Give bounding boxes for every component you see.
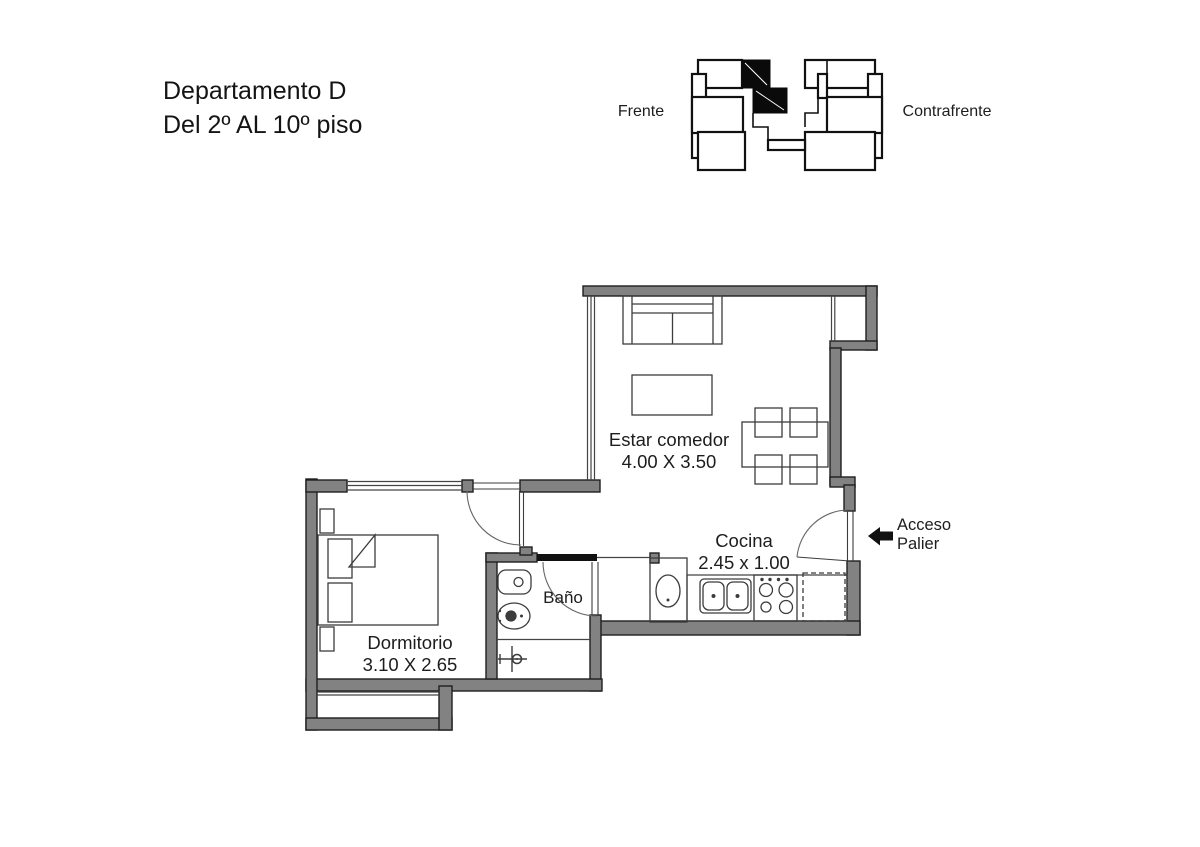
key-plan xyxy=(692,60,882,170)
plan-title-line1: Departamento D xyxy=(163,74,362,108)
arrow-left-icon xyxy=(868,527,893,546)
door-leaf xyxy=(520,491,524,546)
door-arc xyxy=(797,510,849,557)
keyplan-block xyxy=(805,132,875,170)
plan-title-line2: Del 2º AL 10º piso xyxy=(163,108,362,142)
keyplan-block xyxy=(698,132,745,170)
door-arc xyxy=(467,491,521,545)
living-room-name: Estar comedor xyxy=(609,429,729,451)
notch-window xyxy=(832,296,835,341)
nightstand xyxy=(320,627,334,651)
living-room-label: Estar comedor 4.00 X 3.50 xyxy=(609,429,729,473)
kitchen-sink xyxy=(700,579,751,613)
pillow xyxy=(328,583,352,622)
wall-bedroom-top-right xyxy=(520,480,600,492)
keyplan-back-label: Contrafrente xyxy=(903,103,992,121)
keyplan-connector xyxy=(768,140,805,150)
stove xyxy=(754,575,797,621)
bed-frame xyxy=(318,535,438,625)
balcony-window xyxy=(317,692,439,695)
keyplan-front-label: Frente xyxy=(618,103,664,121)
chair xyxy=(790,455,817,484)
sofa xyxy=(623,296,722,344)
bed xyxy=(318,509,438,651)
sheet-fold xyxy=(349,535,375,567)
wall-door-stub xyxy=(520,547,532,555)
keyplan-courtyard-step xyxy=(805,88,818,127)
wall-balcony-bottom xyxy=(306,718,452,730)
wall-living-top xyxy=(583,286,877,296)
keyplan-block xyxy=(805,60,875,88)
door-jamb xyxy=(473,483,520,489)
toilet xyxy=(498,570,531,594)
dining-set xyxy=(742,408,828,484)
bedroom-door xyxy=(467,483,524,546)
kitchen-name: Cocina xyxy=(698,530,790,552)
pillow xyxy=(328,539,352,578)
keyplan-highlighted-unit xyxy=(742,60,787,113)
wall-kitchen-bottom xyxy=(592,621,860,635)
bedroom-dims: 3.10 X 2.65 xyxy=(363,654,458,676)
wall-bottom-band xyxy=(306,679,602,691)
wall-above-entry-door xyxy=(844,485,855,511)
bedroom-name: Dormitorio xyxy=(363,632,458,654)
fridge-space xyxy=(803,573,845,621)
keyplan-block xyxy=(692,97,743,133)
keyplan-courtyard-step xyxy=(753,113,768,140)
keyplan-block xyxy=(827,97,882,133)
plan-title: Departamento D Del 2º AL 10º piso xyxy=(163,74,362,142)
laundry-tub xyxy=(650,558,687,622)
wall-bath-left xyxy=(486,553,497,679)
wall-bedroom-top-mid xyxy=(462,480,473,492)
chair xyxy=(755,455,782,484)
door-leaf xyxy=(797,557,850,561)
door-leaf xyxy=(592,562,598,615)
living-room-dims: 4.00 X 3.50 xyxy=(609,451,729,473)
wall-left xyxy=(306,479,317,730)
access-line2: Palier xyxy=(897,535,951,554)
access-line1: Acceso xyxy=(897,516,951,535)
living-window xyxy=(588,296,595,480)
door-jamb xyxy=(848,511,854,561)
kitchen-dims: 2.45 x 1.00 xyxy=(698,552,790,574)
bathroom-label: Baño xyxy=(543,588,583,608)
wall-right-mid xyxy=(830,348,841,485)
bedroom-window xyxy=(347,482,462,491)
nightstand xyxy=(320,509,334,533)
bath-vanity-bar xyxy=(537,554,597,561)
wall-bedroom-top-left xyxy=(306,480,347,492)
wall-balcony-right xyxy=(439,686,452,730)
floorplan-page: Departamento D Del 2º AL 10º piso Frente… xyxy=(0,0,1200,847)
bedroom-label: Dormitorio 3.10 X 2.65 xyxy=(363,632,458,676)
kitchen-label: Cocina 2.45 x 1.00 xyxy=(698,530,790,574)
entry-door xyxy=(797,510,853,561)
shower-mixer xyxy=(498,646,527,672)
keyplan-block xyxy=(818,74,827,98)
bidet xyxy=(498,603,530,629)
coffee-table xyxy=(632,375,712,415)
access-label: Acceso Palier xyxy=(897,516,951,554)
